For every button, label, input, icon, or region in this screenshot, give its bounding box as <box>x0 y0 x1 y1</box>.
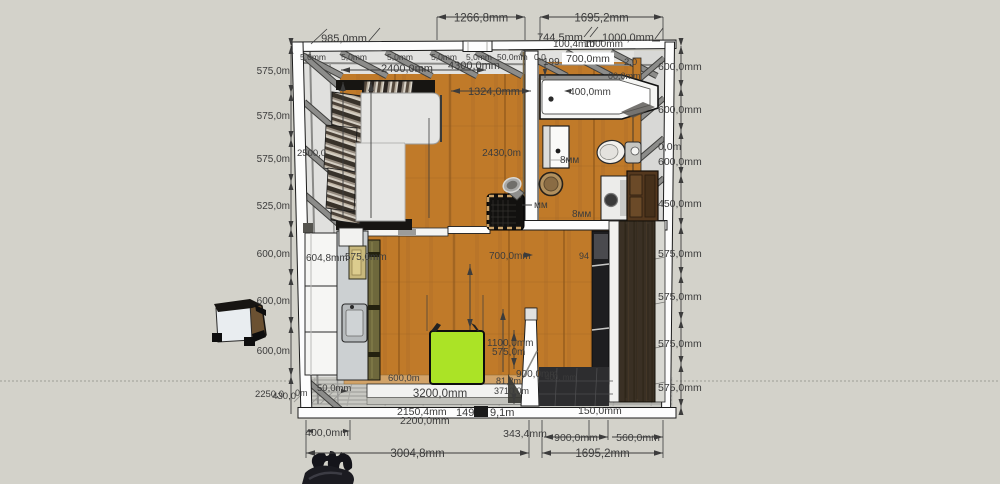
svg-text:0m: 0m <box>295 388 308 398</box>
svg-text:2,0: 2,0 <box>624 57 637 68</box>
svg-text:575,0m: 575,0m <box>257 66 290 77</box>
svg-text:575,0mm: 575,0mm <box>658 291 702 303</box>
svg-text:400,0mm: 400,0mm <box>569 87 611 98</box>
svg-text:575,0m: 575,0m <box>257 154 290 165</box>
svg-text:450,0mm: 450,0mm <box>658 198 702 210</box>
svg-text:199: 199 <box>543 57 560 68</box>
svg-text:мм: мм <box>534 200 548 211</box>
svg-text:600,0m: 600,0m <box>388 373 420 384</box>
svg-text:4300,0mm: 4300,0mm <box>448 60 500 72</box>
svg-text:81,2m: 81,2m <box>496 376 521 386</box>
svg-text:600,0m: 600,0m <box>257 249 290 260</box>
svg-text:8мм: 8мм <box>572 209 591 220</box>
svg-text:2430,0m: 2430,0m <box>482 148 521 159</box>
svg-text:343,4mm: 343,4mm <box>503 428 547 440</box>
svg-text:900,0mm: 900,0mm <box>554 432 598 444</box>
svg-text:5,0mm: 5,0mm <box>387 52 413 62</box>
svg-text:1000mm: 1000mm <box>584 39 623 50</box>
svg-text:604,8mm: 604,8mm <box>306 253 348 264</box>
svg-text:50,0mm: 50,0mm <box>317 383 351 394</box>
svg-text:600,0mm: 600,0mm <box>658 61 702 73</box>
svg-text:600,0mm: 600,0mm <box>658 156 702 168</box>
svg-text:1695,2mm: 1695,2mm <box>575 448 629 460</box>
svg-text:5,0mm: 5,0mm <box>300 52 326 62</box>
svg-text:430,0: 430,0 <box>272 391 296 402</box>
svg-text:00,0mm: 00,0mm <box>608 71 641 81</box>
svg-text:600,0m: 600,0m <box>257 296 290 307</box>
svg-text:600,0m: 600,0m <box>257 346 290 357</box>
svg-text:575,0m: 575,0m <box>257 111 290 122</box>
svg-text:575,0mm: 575,0mm <box>658 338 702 350</box>
svg-text:700,0mm: 700,0mm <box>566 53 610 65</box>
svg-text:3710,0m: 3710,0m <box>494 386 529 396</box>
svg-text:1266,8mm: 1266,8mm <box>454 13 508 25</box>
svg-text:0,0m: 0,0m <box>658 141 682 153</box>
svg-text:560,0mm: 560,0mm <box>616 432 660 444</box>
svg-text:50,0mm: 50,0mm <box>497 52 528 62</box>
svg-text:575,0mm: 575,0mm <box>658 248 702 260</box>
svg-text:525,0m: 525,0m <box>257 201 290 212</box>
svg-text:600,0mm: 600,0mm <box>658 104 702 116</box>
svg-text:2500,0: 2500,0 <box>297 148 326 159</box>
svg-text:575,0mm: 575,0mm <box>345 252 387 263</box>
svg-text:3200,0mm: 3200,0mm <box>413 388 467 400</box>
svg-text:9,1m: 9,1m <box>490 407 514 419</box>
svg-text:900,0mm: 900,0mm <box>516 369 558 380</box>
svg-text:575,0m: 575,0m <box>492 347 525 358</box>
svg-text:985,0mm: 985,0mm <box>321 33 367 45</box>
svg-text:2200,0mm: 2200,0mm <box>400 415 450 427</box>
svg-text:400,0mm: 400,0mm <box>305 427 349 439</box>
svg-text:1695,2mm: 1695,2mm <box>574 13 628 25</box>
svg-text:94: 94 <box>579 251 589 261</box>
svg-text:8мм: 8мм <box>560 155 579 166</box>
svg-text:1324,0mm: 1324,0mm <box>468 86 520 98</box>
svg-text:149: 149 <box>456 407 474 419</box>
svg-text:2400,0mm: 2400,0mm <box>381 63 433 75</box>
svg-text:5,0mm: 5,0mm <box>341 52 367 62</box>
svg-text:575,0mm: 575,0mm <box>658 382 702 394</box>
svg-text:3004,8mm: 3004,8mm <box>390 448 444 460</box>
svg-text:150,0mm: 150,0mm <box>578 405 622 417</box>
